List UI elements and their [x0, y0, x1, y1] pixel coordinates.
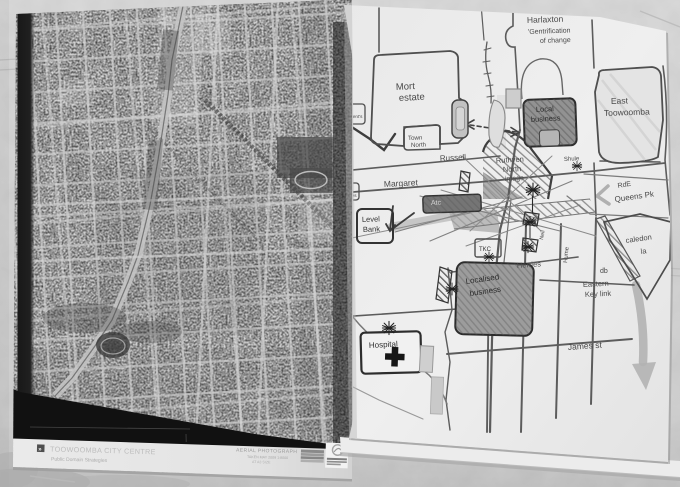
svg-text:'Gentrification: 'Gentrification — [528, 28, 571, 36]
svg-text:Toowoomba: Toowoomba — [604, 106, 650, 118]
svg-text:Mort: Mort — [396, 81, 416, 93]
svg-text:Key link: Key link — [585, 289, 612, 299]
svg-text:estate: estate — [399, 92, 425, 104]
svg-text:Shule: Shule — [564, 156, 580, 163]
svg-text:of change: of change — [540, 37, 571, 45]
svg-text:Eastern: Eastern — [583, 279, 609, 289]
svg-text:Hospital: Hospital — [369, 339, 399, 350]
svg-text:Local: Local — [536, 104, 555, 114]
svg-text:TKC: TKC — [479, 247, 492, 253]
svg-text:Bank: Bank — [363, 224, 381, 234]
svg-text:image: image — [505, 175, 525, 183]
svg-text:AT A3 SIZE: AT A3 SIZE — [252, 460, 271, 464]
svg-text:North: North — [503, 164, 522, 174]
svg-text:Herries: Herries — [517, 259, 542, 270]
svg-text:Harlaxton: Harlaxton — [527, 14, 564, 25]
svg-text:db: db — [600, 268, 608, 275]
svg-text:North: North — [411, 141, 427, 149]
svg-text:Atc: Atc — [431, 200, 442, 207]
svg-text:Level: Level — [362, 214, 381, 224]
svg-text:Margaret: Margaret — [384, 177, 419, 189]
svg-text:Russell: Russell — [440, 153, 467, 163]
svg-text:business: business — [531, 113, 561, 124]
svg-text:East: East — [611, 95, 629, 106]
